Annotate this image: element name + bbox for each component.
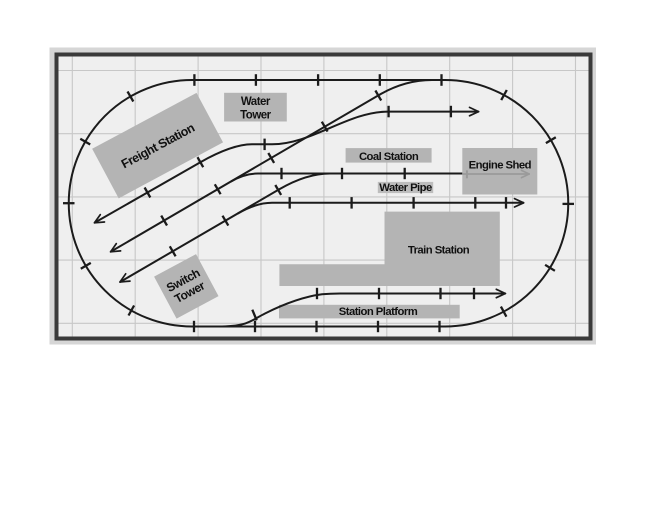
svg-text:Water Pipe: Water Pipe: [379, 182, 432, 194]
svg-text:Train Station: Train Station: [408, 244, 470, 256]
svg-text:Station Platform: Station Platform: [339, 306, 418, 318]
svg-text:Water: Water: [241, 96, 271, 108]
svg-text:Coal Station: Coal Station: [359, 151, 419, 163]
svg-text:Tower: Tower: [240, 109, 272, 121]
